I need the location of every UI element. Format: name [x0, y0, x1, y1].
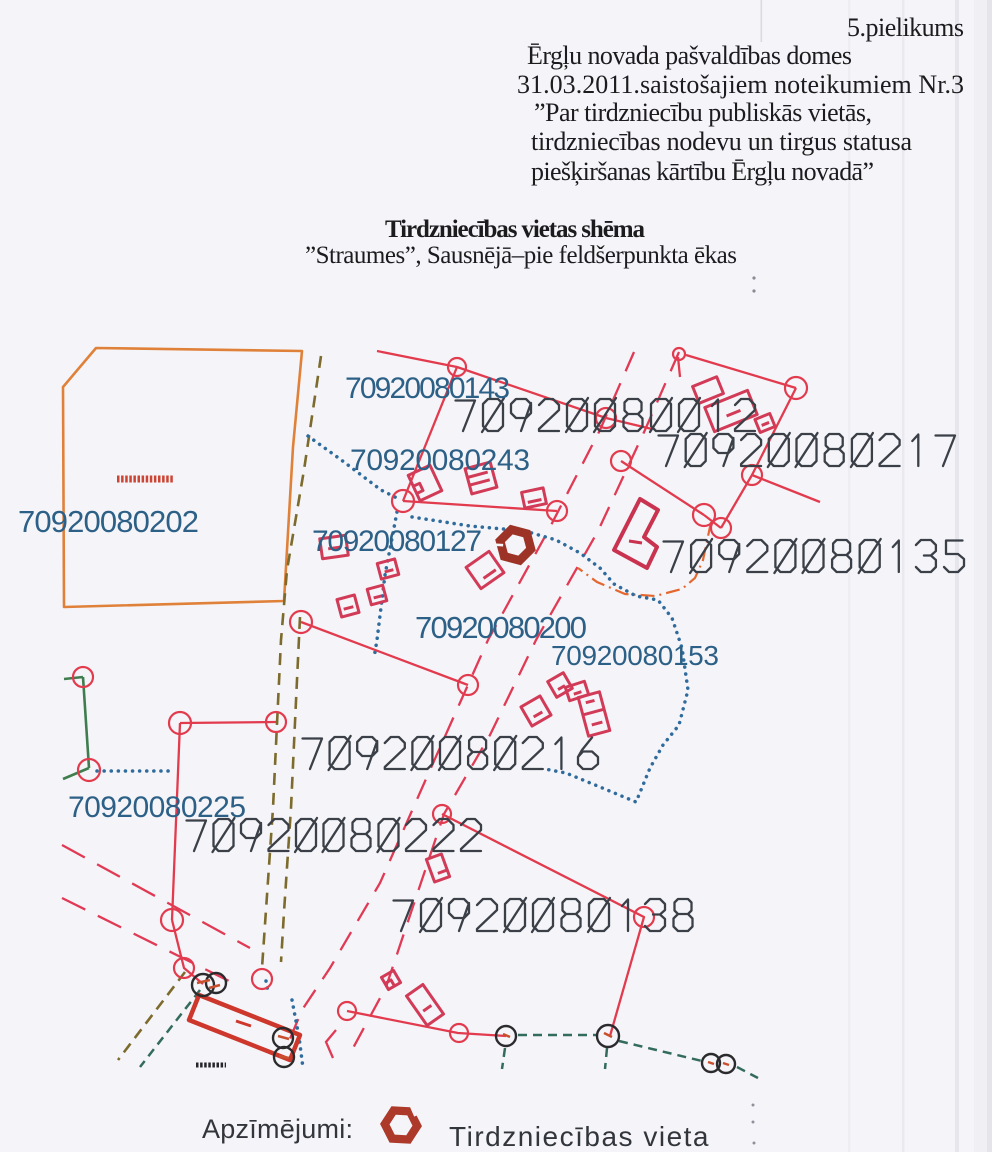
- svg-text:5.pielikums: 5.pielikums: [847, 13, 964, 42]
- svg-text:70920080143: 70920080143: [345, 372, 510, 405]
- svg-text:70920080127: 70920080127: [312, 525, 482, 558]
- svg-text:70920080243: 70920080243: [350, 444, 530, 477]
- svg-text:70920080202: 70920080202: [18, 504, 199, 539]
- svg-text:31.03.2011.saistošajiem noteik: 31.03.2011.saistošajiem noteikumiem Nr.3: [517, 70, 964, 99]
- svg-text:Tirdzniecības vietas shēma: Tirdzniecības vietas shēma: [385, 216, 646, 243]
- svg-text:tirdzniecības nodevu un tirgus: tirdzniecības nodevu un tirgus statusa: [531, 127, 912, 156]
- svg-text:Apzīmējumi:: Apzīmējumi:: [202, 1114, 354, 1144]
- svg-text:70920080225: 70920080225: [68, 791, 246, 824]
- svg-text:”Straumes”, Sausnējā–pie feldš: ”Straumes”, Sausnējā–pie feldšerpunkta ē…: [305, 242, 737, 269]
- svg-text:piešķiršanas kārtību Ērgļu no: piešķiršanas kārtību Ērgļu novadā”: [531, 157, 874, 186]
- svg-text:70920080153: 70920080153: [551, 640, 719, 671]
- svg-text:Ērgļu novada pašvaldības domes: Ērgļu novada pašvaldības domes: [527, 41, 852, 70]
- svg-text:”Par tirdzniecību publiskās vi: ”Par tirdzniecību publiskās vietās,: [534, 98, 872, 127]
- svg-text:Tirdzniecības vieta: Tirdzniecības vieta: [449, 1121, 710, 1152]
